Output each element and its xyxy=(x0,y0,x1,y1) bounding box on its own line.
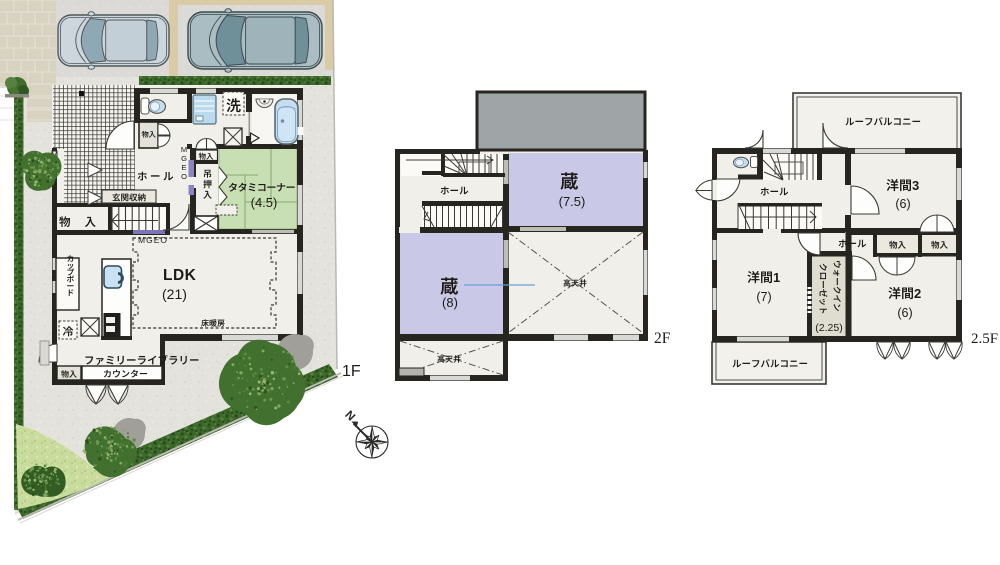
svg-text:(4.5): (4.5) xyxy=(251,195,278,210)
svg-text:3: 3 xyxy=(912,178,919,193)
svg-text:2.5F: 2.5F xyxy=(971,331,998,347)
svg-text:LDK: LDK xyxy=(163,267,197,284)
svg-text:(7): (7) xyxy=(756,290,771,304)
svg-text:1: 1 xyxy=(773,270,780,285)
svg-text:2: 2 xyxy=(914,286,921,301)
svg-text:(21): (21) xyxy=(162,286,187,302)
svg-text:MGEO: MGEO xyxy=(138,235,168,245)
svg-text:(7.5): (7.5) xyxy=(559,194,586,209)
svg-text:(2.25): (2.25) xyxy=(815,322,842,334)
svg-text:(6): (6) xyxy=(895,197,910,211)
svg-text:1F: 1F xyxy=(342,363,361,380)
svg-text:O: O xyxy=(181,172,187,181)
svg-text:(8): (8) xyxy=(442,295,458,310)
svg-text:E: E xyxy=(181,163,186,172)
svg-text:M: M xyxy=(181,145,187,154)
svg-text:(6): (6) xyxy=(897,306,912,320)
svg-text:2F: 2F xyxy=(654,330,671,347)
svg-text:G: G xyxy=(181,154,187,163)
